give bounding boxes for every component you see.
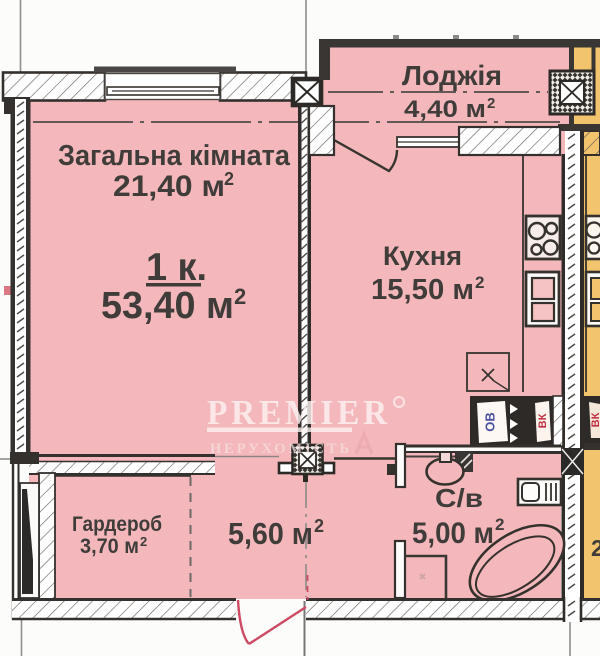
svg-text:Загальна кімната: Загальна кімната: [58, 140, 291, 172]
svg-text:2: 2: [314, 516, 324, 536]
svg-text:2: 2: [591, 535, 600, 561]
svg-text:5,60 м: 5,60 м: [228, 516, 313, 551]
svg-text:2: 2: [140, 534, 147, 549]
svg-text:1 к.: 1 к.: [146, 246, 207, 289]
svg-text:ОВ: ОВ: [482, 412, 497, 432]
svg-text:2: 2: [495, 515, 504, 534]
svg-text:53,40 м: 53,40 м: [101, 285, 234, 327]
svg-text:2: 2: [487, 95, 495, 112]
svg-text:НЕРУХОМІСТЬ: НЕРУХОМІСТЬ: [210, 441, 352, 457]
svg-text:2: 2: [234, 284, 246, 309]
svg-text:15,50 м: 15,50 м: [371, 274, 474, 306]
svg-text:3,70 м: 3,70 м: [80, 535, 139, 558]
svg-text:Гардероб: Гардероб: [72, 513, 162, 536]
svg-text:PREMIER: PREMIER: [207, 393, 391, 432]
svg-text:Лоджія: Лоджія: [402, 60, 502, 91]
svg-text:2: 2: [224, 169, 234, 189]
svg-text:Кухня: Кухня: [383, 241, 462, 271]
svg-text:21,40 м: 21,40 м: [113, 170, 225, 203]
svg-text:С/в: С/в: [435, 483, 483, 513]
svg-text:ВК: ВК: [537, 413, 549, 428]
svg-text:ВК: ВК: [590, 412, 600, 427]
svg-text:5,00 м: 5,00 м: [412, 517, 494, 550]
svg-text:4,40 м: 4,40 м: [404, 96, 486, 123]
svg-text:2: 2: [475, 273, 484, 292]
